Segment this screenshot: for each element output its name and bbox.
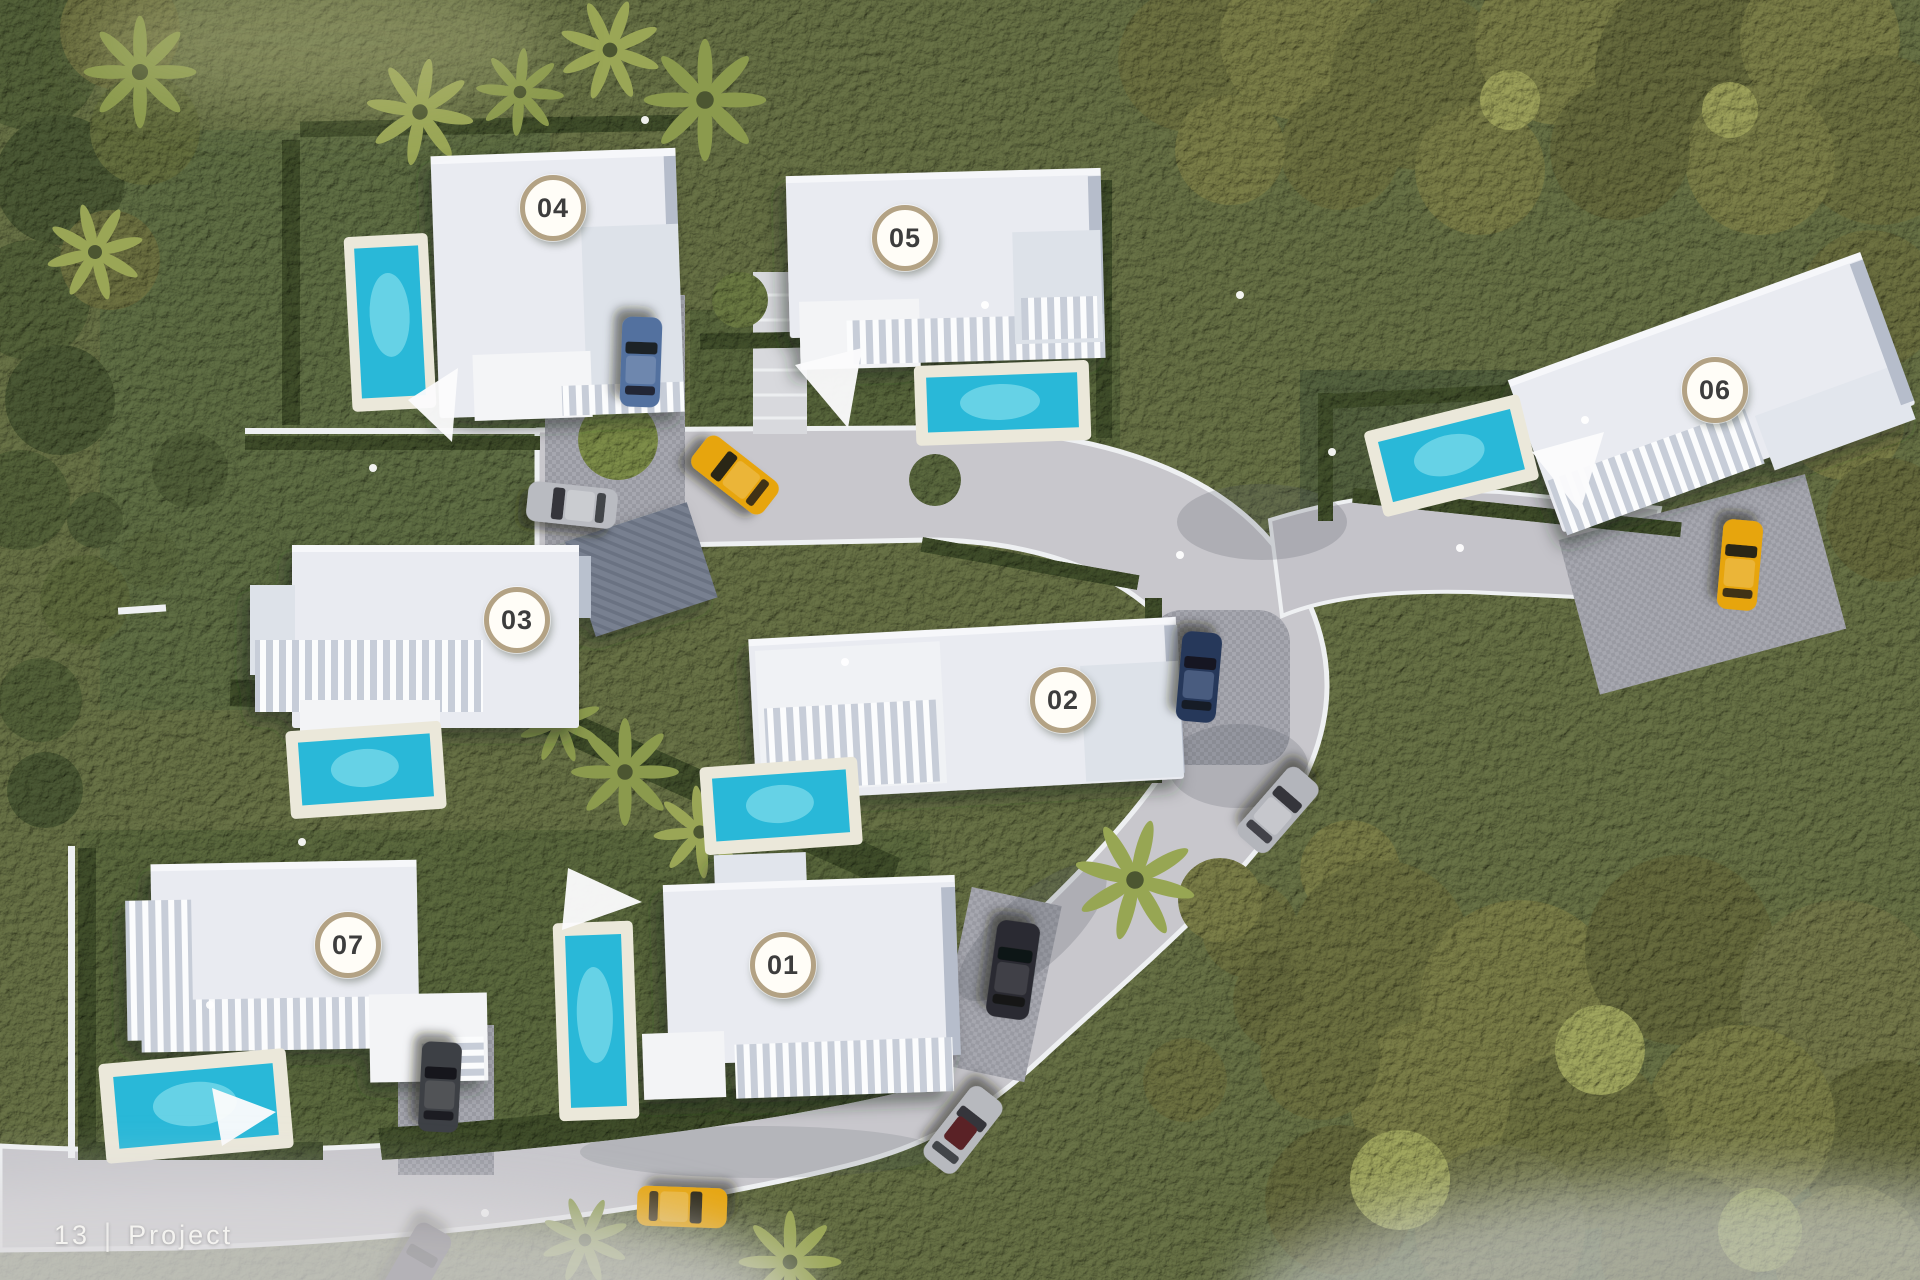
pool-villa-05	[914, 360, 1092, 446]
pool-villa-07	[98, 1048, 294, 1164]
villa-marker-01-label: 01	[767, 950, 799, 981]
villa-marker-04-label: 04	[537, 193, 569, 224]
page-number: 13	[54, 1220, 90, 1251]
footer-divider: |	[104, 1218, 114, 1254]
car-dark-gray-villa-07	[418, 1041, 463, 1133]
villa-marker-05[interactable]: 05	[872, 205, 938, 271]
car-navy-villa-02	[1175, 630, 1223, 723]
villa-marker-03-label: 03	[501, 605, 533, 636]
villa-marker-02-label: 02	[1047, 685, 1079, 716]
car-gold-villa-06	[1716, 518, 1764, 611]
pool-villa-04	[344, 233, 437, 412]
pool-villa-03	[285, 721, 447, 820]
villa-05-building	[786, 168, 1106, 370]
villa-marker-02[interactable]: 02	[1030, 667, 1096, 733]
section-label: Project	[128, 1220, 233, 1251]
villa-marker-01[interactable]: 01	[750, 932, 816, 998]
villa-marker-03[interactable]: 03	[484, 587, 550, 653]
villa-marker-07[interactable]: 07	[315, 912, 381, 978]
car-steel-blue-villa-04	[619, 316, 662, 407]
pool-villa-01	[553, 921, 640, 1122]
site-plan-page: 01 02 03 04 05 06 07 13 | Project	[0, 0, 1920, 1280]
pool-villa-02	[699, 757, 863, 856]
villa-marker-06-label: 06	[1699, 375, 1731, 406]
page-footer: 13 | Project	[54, 1220, 233, 1251]
villa-marker-05-label: 05	[889, 223, 921, 254]
villa-marker-07-label: 07	[332, 930, 364, 961]
site-plan-render	[0, 0, 1920, 1280]
villa-marker-04[interactable]: 04	[520, 175, 586, 241]
villa-marker-06[interactable]: 06	[1682, 357, 1748, 423]
